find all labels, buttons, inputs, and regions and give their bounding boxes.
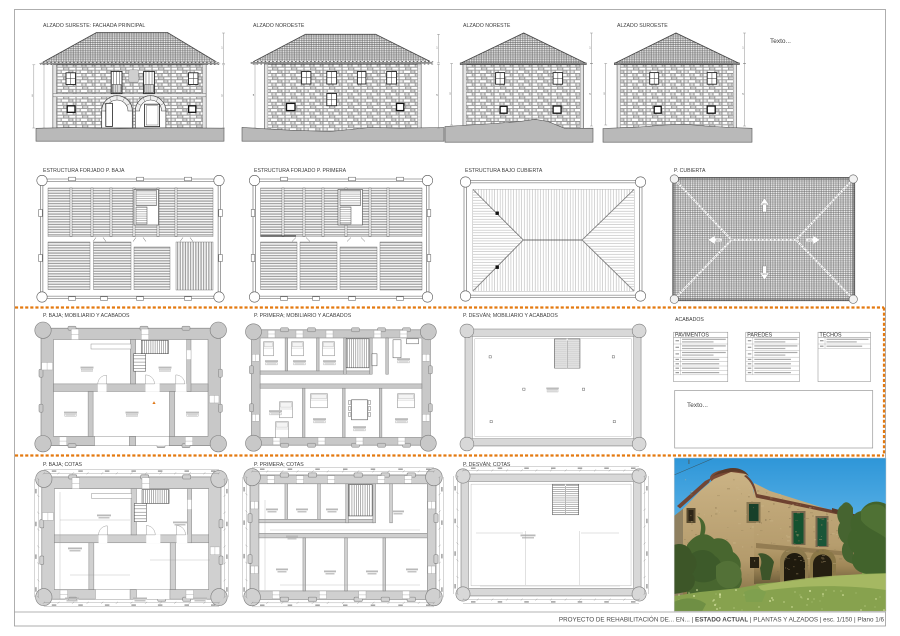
- svg-text:ESTRUCTURA FORJADO P. PRIMERA: ESTRUCTURA FORJADO P. PRIMERA: [254, 168, 347, 174]
- svg-text:ALZADO SURESTE: FACHADA PRINCI: ALZADO SURESTE: FACHADA PRINCIPAL: [43, 23, 145, 29]
- svg-text:ALZADO NORESTE: ALZADO NORESTE: [463, 23, 511, 29]
- svg-text:TECHOS: TECHOS: [820, 333, 843, 339]
- svg-text:ACABADOS: ACABADOS: [675, 317, 704, 323]
- svg-text:ALZADO SUROESTE: ALZADO SUROESTE: [617, 23, 668, 29]
- svg-text:P. BAJA; COTAS: P. BAJA; COTAS: [43, 462, 83, 468]
- svg-text:ESTRUCTURA FORJADO P. BAJA: ESTRUCTURA FORJADO P. BAJA: [43, 168, 125, 174]
- svg-text:Texto...: Texto...: [687, 402, 708, 409]
- svg-text:P. CUBIERTA: P. CUBIERTA: [674, 168, 706, 174]
- svg-text:P. PRIMERA; COTAS: P. PRIMERA; COTAS: [254, 462, 304, 468]
- svg-text:P. DESVÁN; MOBILIARIO Y ACABAD: P. DESVÁN; MOBILIARIO Y ACABADOS: [463, 312, 558, 319]
- svg-text:P. BAJA; MOBILIARIO Y ACABADOS: P. BAJA; MOBILIARIO Y ACABADOS: [43, 313, 130, 319]
- svg-text:P. PRIMERA; MOBILIARIO Y ACABA: P. PRIMERA; MOBILIARIO Y ACABADOS: [254, 313, 352, 319]
- svg-text:PAREDES: PAREDES: [747, 333, 772, 339]
- svg-text:ALZADO NOROESTE: ALZADO NOROESTE: [253, 23, 305, 29]
- svg-text:ESTRUCTURA BAJO CUBIERTA: ESTRUCTURA BAJO CUBIERTA: [465, 168, 543, 174]
- svg-text:P. DESVÁN; COTAS: P. DESVÁN; COTAS: [463, 461, 511, 468]
- svg-text:Texto...: Texto...: [770, 38, 791, 45]
- svg-text:PROYECTO DE REHABILITACIÓN DE.: PROYECTO DE REHABILITACIÓN DE... EN... |…: [559, 615, 885, 624]
- svg-text:PAVIMENTOS: PAVIMENTOS: [675, 333, 709, 339]
